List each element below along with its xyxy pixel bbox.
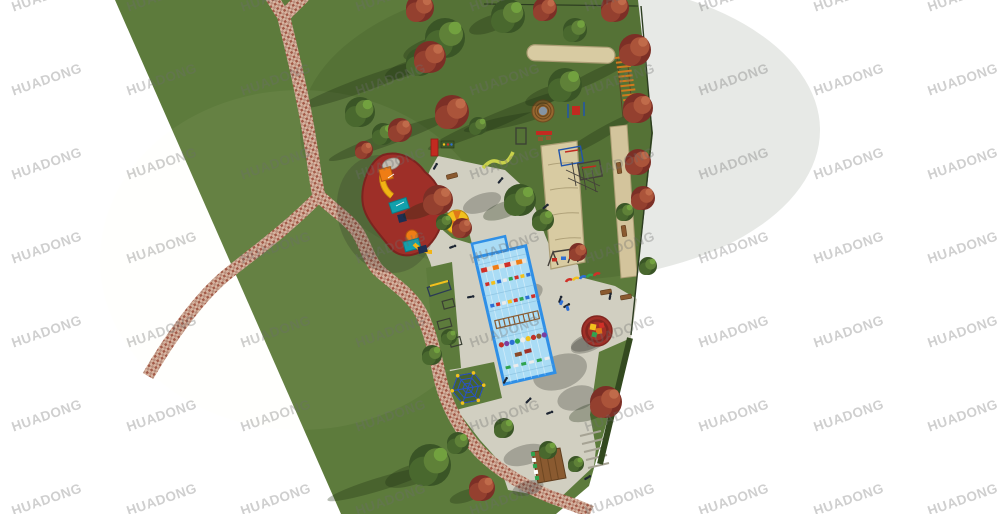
park-site-plan-image: HUADONGHUADONGHUADONGHUADONGHUADONGHUADO… xyxy=(0,0,1000,514)
sand-strip-top xyxy=(527,45,616,64)
site-plan-rendering xyxy=(0,0,1000,514)
